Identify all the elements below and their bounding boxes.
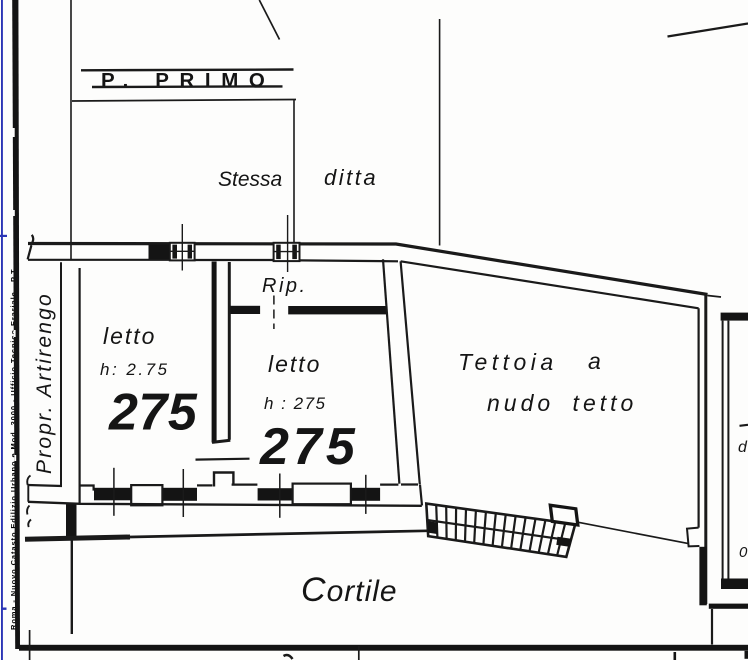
svg-text:h : 275: h : 275 (264, 394, 327, 413)
svg-text:letto: letto (103, 323, 156, 349)
svg-text:a: a (588, 348, 601, 374)
svg-text:letto: letto (268, 351, 321, 377)
svg-text:Propr. Artirengo: Propr. Artirengo (33, 292, 56, 474)
svg-text:P. PRIMO: P. PRIMO (101, 69, 275, 92)
svg-text:Rip.: Rip. (262, 275, 308, 297)
svg-text:ditta: ditta (324, 165, 378, 190)
svg-text:Cortile: Cortile (301, 571, 398, 609)
svg-text:nudo tetto: nudo tetto (487, 390, 637, 416)
svg-text:275: 275 (108, 384, 198, 442)
svg-text:Stessa: Stessa (218, 168, 282, 191)
svg-text:0: 0 (739, 544, 748, 561)
svg-text:d: d (738, 439, 748, 456)
svg-text:275: 275 (259, 418, 359, 476)
svg-text:h: 2.75: h: 2.75 (100, 360, 170, 379)
svg-text:Tettoia: Tettoia (458, 349, 558, 375)
